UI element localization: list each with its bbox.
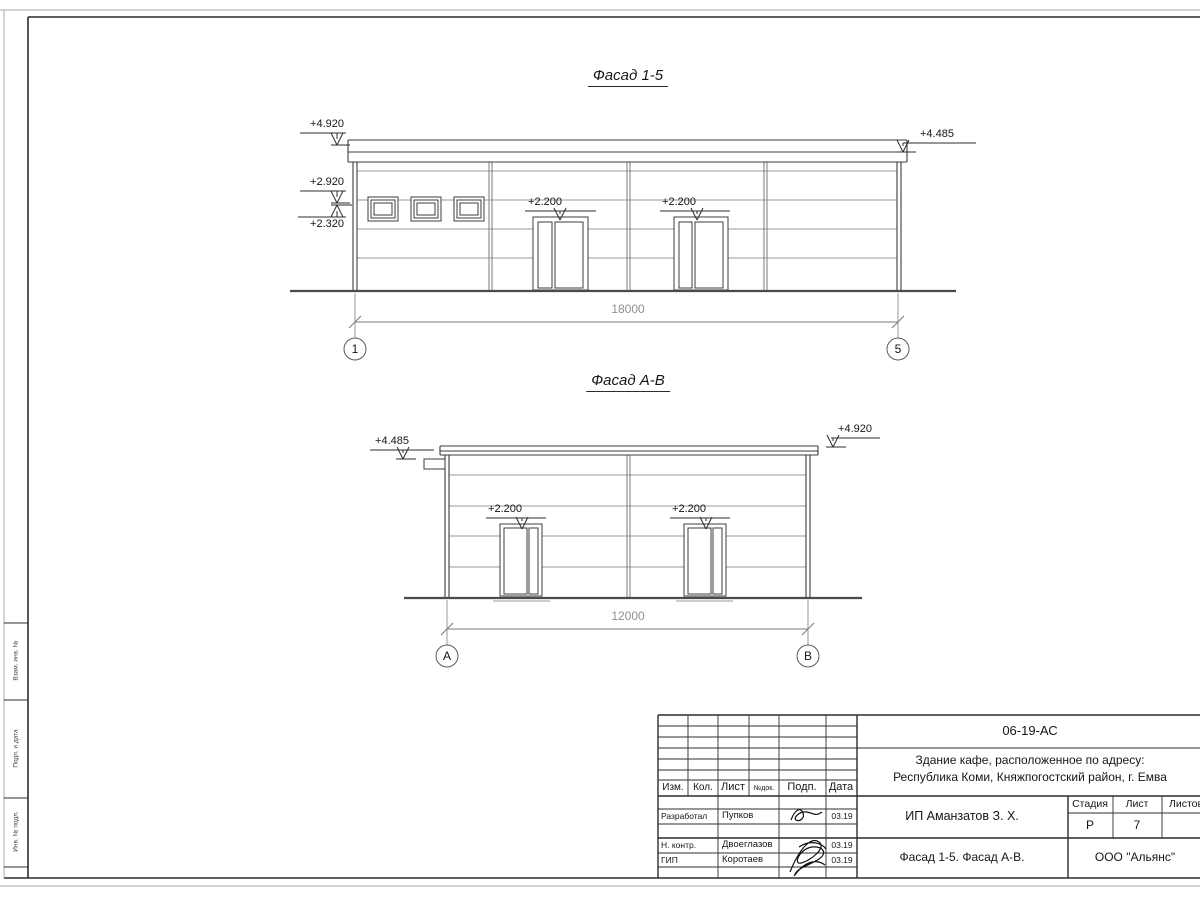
dimension-18000: 18000 — [611, 303, 644, 315]
wall-protrusion — [424, 459, 445, 469]
col-list: Лист — [721, 782, 745, 793]
sheets-label: Листов — [1169, 799, 1200, 810]
row-date-1: 03.19 — [831, 812, 852, 821]
elevation-arrows-f2 — [370, 435, 880, 529]
axis-label-1: 1 — [352, 343, 359, 355]
sheet-label: Лист — [1126, 799, 1149, 810]
elevation-mark-4485-right: +4.485 — [920, 129, 954, 140]
drawing-sheet: Фасад 1-5 +4.920 +2.920 +2.320 +4.485 +2… — [0, 0, 1200, 900]
row-name-dvoeglazov: Двоеглазов — [722, 840, 773, 850]
signature-pupkov — [791, 810, 822, 821]
row-name-pupkov: Пупков — [722, 811, 753, 821]
elevation-arrows-f1 — [298, 133, 976, 220]
col-podp: Подп. — [787, 782, 816, 793]
signature-gip-nkontr — [790, 841, 826, 876]
axis-label-b: В — [804, 650, 812, 662]
col-data: Дата — [829, 782, 853, 793]
facade-1-5-drawing — [290, 133, 976, 360]
side-label-inv-podl: Инв. № подл. — [13, 797, 20, 867]
company-name: ООО "Альянс" — [1095, 851, 1175, 863]
stage-label: Стадия — [1072, 799, 1108, 810]
axis-label-5: 5 — [895, 343, 902, 355]
row-role-razrabotal: Разработал — [661, 812, 707, 821]
drawing-title: Фасад 1-5. Фасад А-В. — [900, 851, 1025, 863]
client-name: ИП Аманзатов З. Х. — [905, 810, 1019, 823]
facade-a-b-drawing — [370, 435, 880, 667]
row-role-gip: ГИП — [661, 856, 678, 865]
door-mark-2200-f2-2: +2.200 — [672, 504, 706, 515]
door-mark-2200-f2-1: +2.200 — [488, 504, 522, 515]
sheet-number: 7 — [1134, 819, 1141, 831]
col-kol: Кол. — [693, 783, 713, 793]
row-date-3: 03.19 — [831, 856, 852, 865]
document-code: 06-19-АС — [1002, 724, 1057, 737]
col-izm: Изм. — [662, 783, 683, 793]
project-address-line1: Здание кафе, расположенное по адресу: — [915, 754, 1144, 766]
project-address-line2: Республика Коми, Княжпогостский район, г… — [893, 771, 1167, 783]
row-role-nkontr: Н. контр. — [661, 841, 696, 850]
sheet-frame — [4, 17, 1200, 878]
side-label-vzam-inv: Взам. инв. № — [13, 626, 20, 696]
row-date-2: 03.19 — [831, 841, 852, 850]
facade-1-5-title: Фасад 1-5 — [588, 68, 668, 87]
dimension-12000: 12000 — [611, 610, 644, 622]
axis-label-a: А — [443, 650, 451, 662]
row-name-korotaev: Коротаев — [722, 855, 763, 865]
door-mark-2200-f1-2: +2.200 — [662, 197, 696, 208]
elevation-mark-4485-left: +4.485 — [375, 436, 409, 447]
stage-value: Р — [1086, 819, 1094, 831]
elevation-mark-2320: +2.320 — [310, 219, 344, 230]
facade-a-b-title: Фасад А-В — [586, 373, 670, 392]
elevation-mark-4920: +4.920 — [310, 119, 344, 130]
elevation-mark-2920: +2.920 — [310, 177, 344, 188]
signature-squiggles — [790, 810, 826, 876]
door-mark-2200-f1-1: +2.200 — [528, 197, 562, 208]
elevation-mark-4920-right: +4.920 — [838, 424, 872, 435]
col-ndok: №док. — [754, 785, 775, 792]
side-label-podp-data: Подп. и дата — [13, 714, 20, 784]
